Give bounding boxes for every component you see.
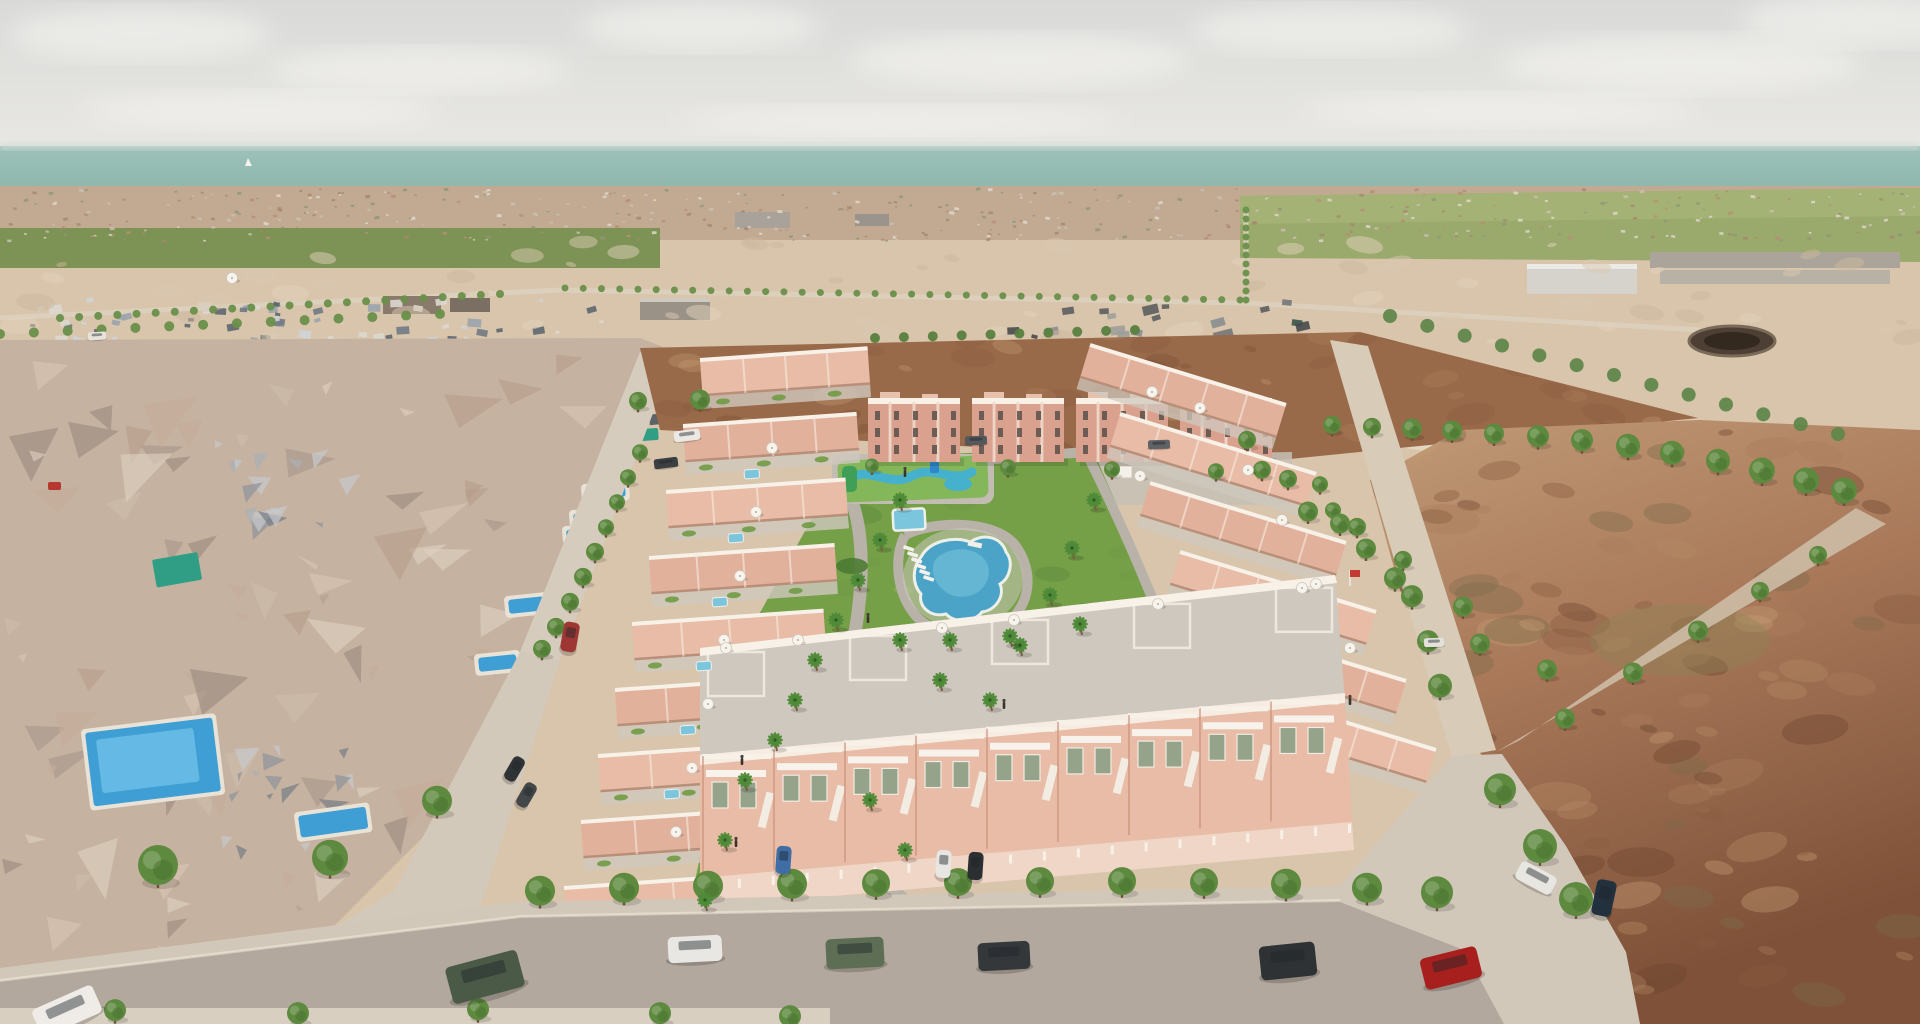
balcony (919, 750, 979, 757)
distant-tree (439, 293, 447, 301)
distant-tree (1243, 234, 1250, 241)
distant-tree (152, 309, 160, 317)
window-green (1237, 734, 1253, 760)
distant-tree (890, 290, 897, 297)
cloud (580, 2, 820, 50)
distant-tree (1420, 319, 1434, 333)
window (951, 428, 956, 437)
distant-tree (400, 295, 408, 303)
distant-tree (1243, 288, 1250, 295)
distant-tree (266, 317, 276, 327)
distant-tree (744, 288, 751, 295)
window (979, 428, 984, 437)
window (1102, 445, 1107, 454)
distant-tree (780, 288, 787, 295)
window (1017, 428, 1022, 437)
window (1083, 445, 1088, 454)
distant-tree (1109, 294, 1116, 301)
plunge-pool (664, 789, 680, 799)
cloud (1190, 6, 1470, 54)
person (1348, 695, 1351, 705)
car-glass (779, 851, 789, 861)
distant-tree (986, 329, 996, 339)
distant-tree (926, 291, 933, 298)
distant-tree (1243, 270, 1250, 277)
red-flag (1350, 570, 1360, 577)
window-green (1024, 755, 1040, 781)
distant-tree (343, 298, 351, 306)
distant-tree (1182, 296, 1189, 303)
distant-tree (689, 287, 696, 294)
parked-car (966, 851, 985, 884)
balcony (706, 770, 766, 777)
distant-tree (1532, 348, 1546, 362)
car-glass (565, 627, 576, 639)
distant-tree (1130, 325, 1140, 335)
window (1036, 411, 1041, 420)
distant-tree (762, 288, 769, 295)
distant-tree (1243, 243, 1250, 250)
distant-tree (266, 303, 274, 311)
distant-tree (1243, 225, 1250, 232)
car-glass (837, 943, 872, 955)
distant-tree (113, 311, 121, 319)
distant-tree (1127, 295, 1134, 302)
window-green (1067, 748, 1083, 774)
distant-tree (1756, 407, 1770, 421)
aerial-render-scene (0, 0, 1920, 1024)
distant-tree (133, 310, 141, 318)
distant-tree (1072, 294, 1079, 301)
distant-tree (872, 290, 879, 297)
car-glass (971, 857, 981, 867)
parked-car (1147, 440, 1172, 451)
window (979, 411, 984, 420)
distant-tree (209, 306, 217, 314)
distant-tree (381, 296, 389, 304)
wall-post (907, 864, 910, 873)
person (734, 837, 737, 847)
distant-tree (232, 318, 242, 328)
distant-tree (817, 289, 824, 296)
parked-car (1423, 638, 1445, 649)
window (998, 428, 1003, 437)
distant-tree (1036, 293, 1043, 300)
plunge-pool (712, 597, 728, 607)
distant-tree (1043, 328, 1053, 338)
distant-tree (94, 312, 102, 320)
window (1083, 428, 1088, 437)
distant-tree (164, 321, 174, 331)
balcony (848, 756, 908, 763)
plunge-pool (680, 725, 696, 735)
wall-post (1009, 855, 1012, 864)
distant-tree (1237, 297, 1244, 304)
wall-post (1145, 842, 1148, 851)
person (903, 467, 906, 477)
wall-post (738, 879, 741, 888)
window-green (925, 762, 941, 788)
distant-tree (671, 286, 678, 293)
distant-tree (1458, 329, 1472, 343)
distant-tree (1383, 309, 1397, 323)
cloud (680, 106, 1120, 134)
car-glass (1428, 639, 1440, 642)
wall-post (1246, 833, 1249, 842)
window (1102, 411, 1107, 420)
distant-tree (1200, 296, 1207, 303)
apartment-block (972, 392, 1068, 466)
wall-post (772, 876, 775, 885)
sea (0, 146, 1920, 192)
wall-post (1077, 848, 1080, 857)
cloud (1500, 36, 1860, 92)
car-glass (969, 437, 982, 441)
distant-tree (1072, 327, 1082, 337)
balcony (1274, 715, 1334, 722)
car-glass (939, 855, 949, 865)
parked-car (665, 934, 726, 967)
plunge-pool (728, 533, 744, 543)
distant-tree (1243, 252, 1250, 259)
distant-tree (853, 290, 860, 297)
window-green (1138, 741, 1154, 767)
distant-tree (1719, 398, 1733, 412)
window-green (811, 775, 827, 801)
distant-tree (305, 300, 313, 308)
distant-tree (1243, 216, 1250, 223)
window (1055, 428, 1060, 437)
parked-car (774, 845, 793, 878)
distant-tree (130, 323, 140, 333)
car-glass (988, 946, 1020, 957)
distant-tree (435, 309, 445, 319)
wall-post (1043, 851, 1046, 860)
car-glass (678, 940, 711, 951)
distant-tree (634, 286, 641, 293)
wall-post (1314, 827, 1317, 836)
distant-tree (29, 327, 39, 337)
parked-car (822, 936, 888, 973)
parked-car (975, 941, 1034, 976)
distant-tree (171, 308, 179, 316)
window (875, 411, 880, 420)
distant-tree (1018, 293, 1025, 300)
window (1055, 411, 1060, 420)
distant-tree (324, 299, 332, 307)
distant-tree (1570, 358, 1584, 372)
window-green (1095, 748, 1111, 774)
wall-post (840, 870, 843, 879)
cloud (10, 8, 270, 60)
window (1036, 445, 1041, 454)
car-glass (1152, 441, 1165, 445)
parked-car (934, 849, 953, 882)
distant-tree (75, 313, 83, 321)
distant-tree (1243, 297, 1250, 304)
distant-tree (1218, 296, 1225, 303)
distant-tree (477, 291, 485, 299)
window (875, 445, 880, 454)
window (951, 445, 956, 454)
distant-tree (799, 289, 806, 296)
distant-tree (1014, 329, 1024, 339)
window-green (1280, 727, 1296, 753)
distant-tree (1145, 295, 1152, 302)
distant-tree (957, 330, 967, 340)
distant-tree (1831, 427, 1845, 441)
window (894, 428, 899, 437)
window-green (854, 768, 870, 794)
distant-tree (726, 287, 733, 294)
distant-tree (1101, 326, 1111, 336)
distant-tree (908, 291, 915, 298)
distant-tree (899, 332, 909, 342)
window (1017, 445, 1022, 454)
distant-tree (598, 285, 605, 292)
distant-tree (1794, 417, 1808, 431)
balcony (1061, 736, 1121, 743)
distant-tree (198, 320, 208, 330)
window (951, 411, 956, 420)
window (998, 445, 1003, 454)
cloud (80, 92, 440, 128)
horizon-haze (0, 142, 1920, 150)
distant-tree (981, 292, 988, 299)
distant-tree (707, 287, 714, 294)
window-green (996, 755, 1012, 781)
window (894, 411, 899, 420)
distant-tree (963, 292, 970, 299)
window (998, 411, 1003, 420)
window-green (953, 762, 969, 788)
distant-tree (1495, 339, 1509, 353)
distant-tree (367, 312, 377, 322)
distant-tree (653, 286, 660, 293)
distant-tree (616, 285, 623, 292)
distant-tree (1091, 294, 1098, 301)
window-green (1308, 727, 1324, 753)
wall-post (1348, 824, 1351, 833)
person (866, 613, 869, 623)
wall-post (1111, 845, 1114, 854)
person (1002, 699, 1005, 709)
window (1036, 428, 1041, 437)
window (913, 428, 918, 437)
window-green (1166, 741, 1182, 767)
person (740, 755, 743, 765)
window-green (783, 775, 799, 801)
balcony (1132, 729, 1192, 736)
distant-tree (580, 285, 587, 292)
plunge-pool (696, 661, 712, 671)
distant-tree (1164, 295, 1171, 302)
distant-tree (63, 326, 73, 336)
distant-tree (928, 331, 938, 341)
distant-tree (300, 315, 310, 325)
window (1102, 428, 1107, 437)
window-green (1209, 734, 1225, 760)
cloud (850, 34, 1190, 86)
cloud (270, 48, 570, 92)
window (932, 445, 937, 454)
distant-tree (362, 297, 370, 305)
balcony (777, 763, 837, 770)
cloud (1300, 94, 1700, 126)
apartment-block (868, 392, 964, 466)
tarp (48, 482, 61, 490)
wall-post (1179, 839, 1182, 848)
balcony (990, 743, 1050, 750)
window-green (882, 768, 898, 794)
distant-tree (1682, 388, 1696, 402)
window (1055, 445, 1060, 454)
distant-tree (1607, 368, 1621, 382)
window (913, 445, 918, 454)
distant-tree (1644, 378, 1658, 392)
distant-tree (945, 291, 952, 298)
distant-tree (458, 292, 466, 300)
window (1083, 411, 1088, 420)
distant-tree (562, 285, 569, 292)
distant-tree (190, 307, 198, 315)
wall-post (1280, 830, 1283, 839)
distant-tree (286, 301, 294, 309)
distant-tree (1054, 293, 1061, 300)
distant-tree (835, 289, 842, 296)
existing-pool (81, 713, 226, 811)
window (875, 428, 880, 437)
window-green (712, 782, 728, 808)
window (913, 411, 918, 420)
distant-tree (56, 314, 64, 322)
window (1017, 411, 1022, 420)
distant-tree (228, 305, 236, 313)
distant-tree (333, 314, 343, 324)
plunge-pool (744, 469, 760, 479)
distant-tree (401, 311, 411, 321)
window (979, 445, 984, 454)
distant-tree (1243, 207, 1250, 214)
distant-tree (247, 304, 255, 312)
parked-car (964, 436, 989, 447)
distant-tree (1243, 279, 1250, 286)
window (932, 428, 937, 437)
car-glass (1598, 885, 1612, 899)
scene-canvas (0, 0, 1920, 1024)
distant-tree (870, 333, 880, 343)
distant-tree (419, 294, 427, 302)
distant-tree (999, 292, 1006, 299)
distant-tree (1243, 261, 1250, 268)
window (894, 445, 899, 454)
distant-tree (496, 290, 504, 298)
balcony (1203, 722, 1263, 729)
wall-post (1212, 836, 1215, 845)
window (932, 411, 937, 420)
